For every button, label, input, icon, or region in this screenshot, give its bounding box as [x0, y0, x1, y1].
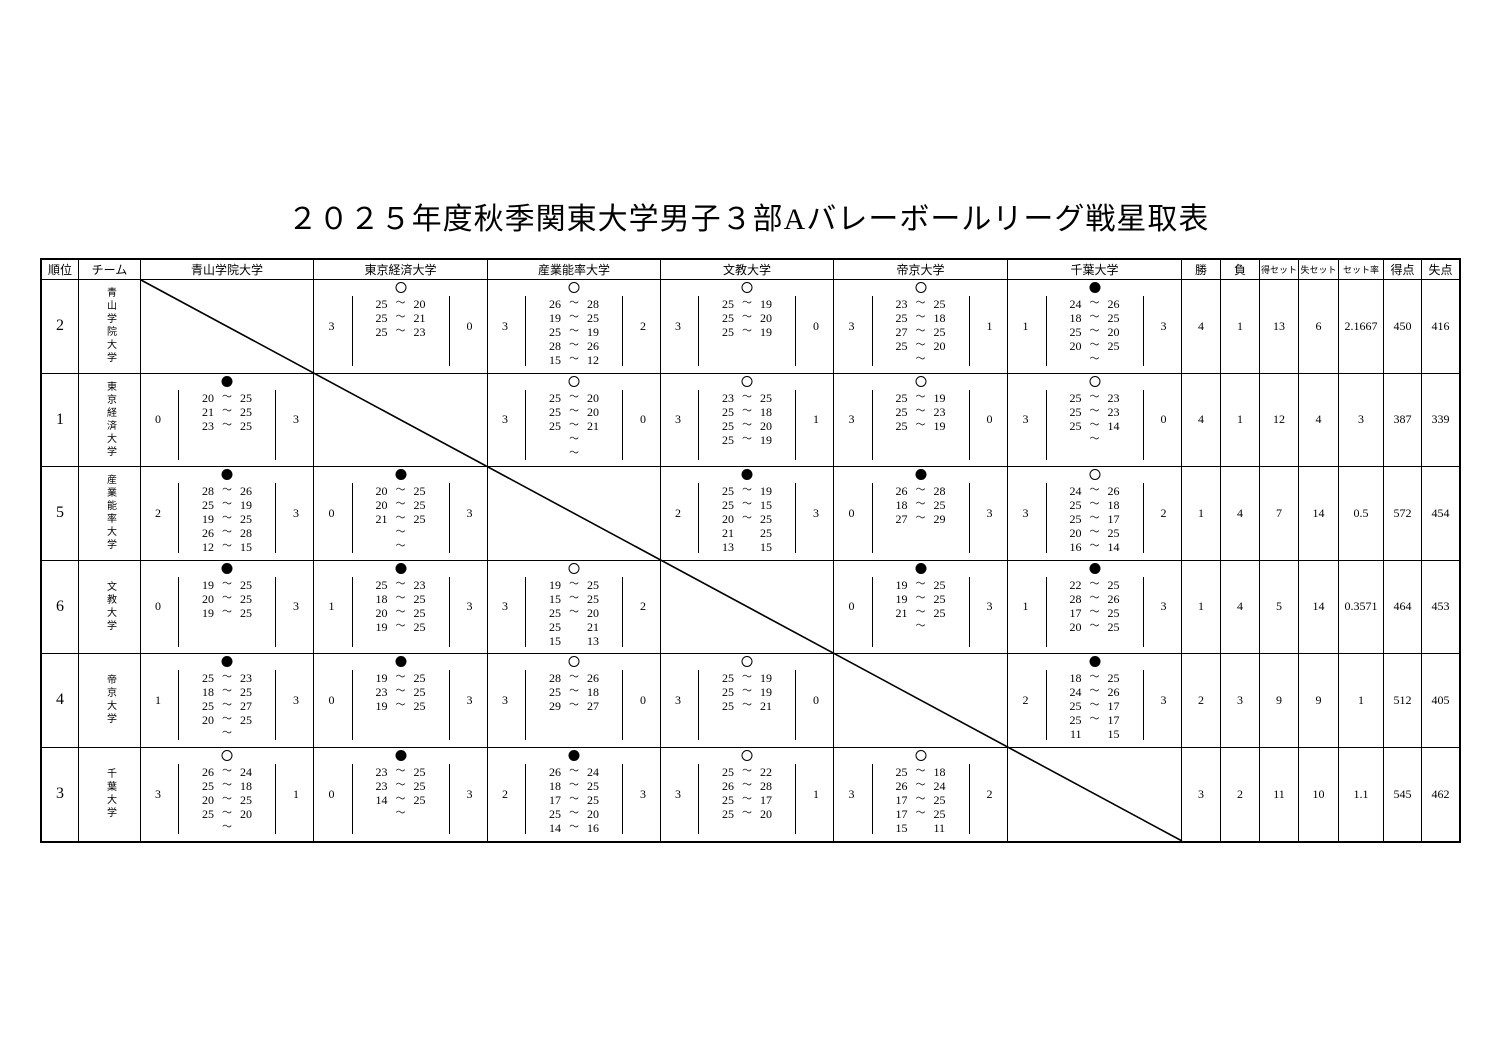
set-score-list: 25～1925～1925～21: [704, 670, 790, 740]
team-name: 千葉大学: [79, 748, 141, 842]
score-value: 25: [414, 671, 444, 685]
set-score-row: 12～15: [184, 540, 270, 554]
score-value: 25: [531, 325, 561, 339]
score-value: 19: [878, 592, 908, 606]
score-dash: ～: [734, 419, 760, 433]
set-score-row: 23～25: [704, 391, 790, 405]
set-score-row: 25～19: [704, 325, 790, 339]
score-value: 29: [531, 699, 561, 713]
score-value: 25: [414, 793, 444, 807]
stat-points-for: 572: [1384, 467, 1422, 561]
set-score-row: 25～19: [704, 484, 790, 498]
score-value: 25: [1052, 405, 1082, 419]
stat-sets-lost: 6: [1299, 280, 1339, 374]
set-score-list: 26～2418～2517～2525～2014～16: [531, 764, 617, 835]
divider: [275, 577, 276, 647]
score-value: 25: [704, 498, 734, 512]
divider: [698, 670, 699, 740]
score-dash: ～: [214, 793, 240, 807]
set-scores: 19～2520～2519～25: [178, 577, 276, 647]
score-value: 17: [1108, 699, 1138, 713]
score-value: 18: [184, 685, 214, 699]
score-value: 15: [1108, 727, 1138, 741]
set-scores: 24～2618～2525～2020～25～: [1046, 296, 1144, 367]
set-score-row: 25～19: [878, 391, 964, 405]
set-score-row: 25～18: [878, 311, 964, 325]
sets-won-right: 1: [808, 412, 824, 427]
set-score-row: 25～23: [1052, 391, 1138, 405]
stat-points-for: 545: [1384, 748, 1422, 842]
score-dash: ～: [908, 779, 934, 793]
score-value: 20: [414, 297, 444, 311]
match-cell: 228～2625～1919～2526～2812～153: [141, 467, 314, 561]
divider: [698, 296, 699, 366]
score-value: 25: [414, 779, 444, 793]
score-dash: ～: [734, 498, 760, 512]
score-dash: ～: [561, 821, 587, 835]
match-cell: 226～2418～2517～2525～2014～163: [488, 748, 661, 842]
score-value: 19: [760, 297, 790, 311]
match-cell: 325～2325～2325～14～0: [1008, 374, 1182, 468]
stat-points-for: 387: [1384, 374, 1422, 468]
score-value: 18: [760, 405, 790, 419]
score-value: 21: [358, 512, 388, 526]
set-score-row: 25～17: [704, 793, 790, 807]
stat-losses: 2: [1221, 748, 1260, 842]
score-dash: ～: [1082, 699, 1108, 713]
sets-won-right: 3: [1156, 693, 1172, 708]
score-dash: ～: [734, 484, 760, 498]
score-dash: ～: [908, 419, 934, 433]
score-dash: ～: [561, 606, 587, 620]
set-score-row: 25～19: [704, 685, 790, 699]
set-scores: 25～2318～2520～2519～25: [352, 577, 450, 647]
score-value: 18: [934, 765, 964, 779]
score-dash: ～: [734, 699, 760, 713]
score-dash: ～: [214, 765, 240, 779]
score-dash: ～: [561, 699, 587, 713]
score-value: 23: [1108, 405, 1138, 419]
score-dash: ～: [561, 592, 587, 606]
score-value: 19: [240, 498, 270, 512]
match-result: 325～1826～2417～2517～2515112: [834, 748, 1007, 842]
set-score-row: 25～22: [704, 765, 790, 779]
score-dash: ～: [734, 671, 760, 685]
score-dash: ～: [388, 620, 414, 634]
score-dash: ～: [388, 779, 414, 793]
score-dash: ～: [1082, 526, 1108, 540]
match-cell: 218～2524～2625～1725～1711153: [1008, 654, 1182, 748]
score-value: 25: [358, 311, 388, 325]
col-header-opponent-3: 文教大学: [661, 260, 834, 280]
divider: [1143, 670, 1144, 740]
sets-won-left: 0: [844, 599, 860, 614]
sets-won-right: 2: [982, 787, 998, 802]
rank-cell: 4: [42, 654, 79, 748]
score-dash: ～: [908, 765, 934, 779]
score-dash: ～: [908, 606, 934, 620]
score-dash: ～: [388, 671, 414, 685]
score-dash: ～: [388, 540, 414, 554]
team-name-label: 帝京大学: [105, 674, 115, 726]
score-value: 19: [184, 578, 214, 592]
score-value: 21: [760, 699, 790, 713]
score-dash: ～: [388, 606, 414, 620]
set-score-row: ～: [531, 447, 617, 461]
set-score-row: 28～26: [531, 671, 617, 685]
score-dash: ～: [734, 807, 760, 821]
set-scores: 19～2523～2519～25: [352, 670, 450, 740]
sets-won-right: 2: [635, 319, 651, 334]
sets-won-right: 0: [808, 319, 824, 334]
score-value: 25: [704, 405, 734, 419]
set-score-list: 25～2025～2125～23: [358, 296, 444, 366]
set-score-row: 17～25: [531, 793, 617, 807]
match-cell: 323～2525～1825～2025～191: [661, 374, 834, 468]
score-value: 21: [184, 405, 214, 419]
score-value: 21: [587, 419, 617, 433]
stat-set-ratio: 2.1667: [1339, 280, 1384, 374]
match-result: 020～2521～2523～253: [141, 374, 313, 467]
score-value: 14: [1108, 540, 1138, 554]
score-value: 25: [1052, 699, 1082, 713]
score-value: 14: [531, 821, 561, 835]
score-dash: ～: [214, 606, 240, 620]
score-value: 25: [934, 592, 964, 606]
score-value: 23: [414, 325, 444, 339]
set-scores: 25～2226～2825～1725～20: [698, 764, 796, 834]
sets-won-right: 2: [635, 599, 651, 614]
set-score-list: 25～1925～1520～2521251315: [704, 483, 790, 554]
score-value: 25: [414, 765, 444, 779]
sets-won-right: 3: [808, 506, 824, 521]
set-score-row: 25～20: [531, 606, 617, 620]
score-dash: ～: [908, 498, 934, 512]
sets-won-left: 2: [670, 506, 686, 521]
set-score-row: 25～17: [1052, 512, 1138, 526]
set-score-row: 27～25: [878, 325, 964, 339]
sets-won-left: 0: [324, 693, 340, 708]
match-result: 325～2226～2825～1725～201: [661, 748, 833, 842]
score-value: 19: [760, 433, 790, 447]
set-score-row: 25～20: [878, 339, 964, 353]
set-score-row: 17～25: [878, 807, 964, 821]
score-value: [184, 727, 214, 741]
score-value: [358, 807, 388, 821]
score-dash: ～: [908, 484, 934, 498]
self-cell: [661, 561, 834, 655]
score-dash: ～: [908, 325, 934, 339]
score-value: 24: [587, 765, 617, 779]
set-score-row: 20～25: [704, 512, 790, 526]
score-value: 25: [934, 325, 964, 339]
match-cell: 019～2519～2521～25～3: [834, 561, 1008, 655]
set-score-row: 19～25: [531, 311, 617, 325]
score-dash: ～: [734, 779, 760, 793]
sets-won-left: 3: [150, 787, 166, 802]
divider: [872, 577, 873, 647]
score-dash: [561, 634, 587, 648]
score-value: 23: [184, 419, 214, 433]
match-result: 020～2520～2521～25～～3: [314, 467, 487, 560]
score-value: 25: [878, 339, 908, 353]
score-dash: [561, 620, 587, 634]
set-score-row: ～: [1052, 433, 1138, 447]
stat-losses: 1: [1221, 280, 1260, 374]
score-value: 20: [587, 606, 617, 620]
stat-wins: 1: [1182, 561, 1221, 655]
score-value: 26: [1108, 592, 1138, 606]
score-value: 25: [240, 713, 270, 727]
score-value: 25: [1108, 606, 1138, 620]
score-value: 25: [704, 699, 734, 713]
score-value: 20: [760, 807, 790, 821]
divider: [622, 577, 623, 647]
sets-won-left: 3: [497, 412, 513, 427]
score-value: 13: [704, 540, 734, 554]
score-value: 20: [760, 419, 790, 433]
score-value: 16: [587, 821, 617, 835]
rank-cell: 1: [42, 374, 79, 468]
score-value: 20: [358, 498, 388, 512]
sets-won-left: 2: [497, 787, 513, 802]
sets-won-left: 0: [324, 787, 340, 802]
rank-cell: 5: [42, 467, 79, 561]
self-cell: [834, 654, 1008, 748]
stat-sets-lost: 10: [1299, 748, 1339, 842]
score-value: [1108, 433, 1138, 447]
set-score-list: 24～2618～2525～2020～25～: [1052, 296, 1138, 367]
score-value: 25: [184, 807, 214, 821]
score-value: 25: [1108, 620, 1138, 634]
sets-won-right: 3: [982, 506, 998, 521]
set-score-row: 26～28: [704, 779, 790, 793]
score-value: 22: [760, 765, 790, 779]
score-value: 25: [1052, 391, 1082, 405]
score-dash: [734, 526, 760, 540]
set-score-row: 25～23: [878, 405, 964, 419]
divider: [352, 670, 353, 740]
team-name-label: 文教大学: [105, 581, 115, 633]
set-score-row: 26～28: [531, 297, 617, 311]
set-score-list: 20～2520～2521～25～～: [358, 483, 444, 554]
sets-won-right: 1: [808, 787, 824, 802]
score-value: 19: [587, 325, 617, 339]
rank-cell: 6: [42, 561, 79, 655]
score-dash: ～: [388, 592, 414, 606]
set-score-row: 23～25: [184, 419, 270, 433]
set-score-row: 14～25: [358, 793, 444, 807]
set-score-row: 21～25: [358, 512, 444, 526]
score-value: 25: [240, 578, 270, 592]
set-score-row: 19～25: [184, 606, 270, 620]
match-result: 122～2528～2617～2520～253: [1008, 561, 1181, 654]
self-cell: [1008, 748, 1182, 842]
score-value: 17: [878, 793, 908, 807]
col-header-opponent-1: 東京経済大学: [314, 260, 488, 280]
stat-wins: 3: [1182, 748, 1221, 842]
score-value: 26: [878, 779, 908, 793]
sets-won-right: 3: [288, 599, 304, 614]
match-cell: 125～2318～2525～2720～25～3: [141, 654, 314, 748]
score-dash: ～: [388, 578, 414, 592]
match-cell: 019～2520～2519～253: [141, 561, 314, 655]
stat-set-ratio: 0.3571: [1339, 561, 1384, 655]
score-dash: ～: [734, 405, 760, 419]
stat-set-ratio: 1.1: [1339, 748, 1384, 842]
divider: [795, 296, 796, 366]
stat-points-against: 462: [1422, 748, 1459, 842]
page-title: ２０２５年度秋季関東大学男子３部Aバレーボールリーグ戦星取表: [0, 194, 1497, 238]
score-value: 20: [1052, 339, 1082, 353]
score-value: 18: [934, 311, 964, 325]
match-cell: 019～2523～2519～253: [314, 654, 488, 748]
set-score-list: 25～1925～2025～19: [704, 296, 790, 366]
set-scores: 19～2515～2525～2025211513: [525, 577, 623, 648]
score-value: 26: [184, 765, 214, 779]
score-value: 20: [1052, 620, 1082, 634]
stat-sets-won: 13: [1260, 280, 1299, 374]
set-score-row: 18～25: [878, 498, 964, 512]
match-cell: 023～2523～2514～25～3: [314, 748, 488, 842]
score-value: 26: [1108, 297, 1138, 311]
score-value: 25: [240, 592, 270, 606]
divider: [525, 670, 526, 740]
match-result: 325～2325～2325～14～0: [1008, 374, 1181, 467]
stat-losses: 3: [1221, 654, 1260, 748]
sets-won-left: 3: [1018, 412, 1034, 427]
score-dash: ～: [214, 540, 240, 554]
stat-set-ratio: 1: [1339, 654, 1384, 748]
score-value: 19: [531, 578, 561, 592]
score-value: 20: [358, 606, 388, 620]
set-scores: 22～2528～2617～2520～25: [1046, 577, 1144, 647]
set-score-row: 19～25: [878, 578, 964, 592]
divider: [525, 764, 526, 834]
score-dash: ～: [1082, 419, 1108, 433]
score-value: 19: [760, 484, 790, 498]
score-dash: ～: [388, 484, 414, 498]
set-score-row: 23～25: [358, 685, 444, 699]
score-value: 18: [240, 779, 270, 793]
score-value: 27: [878, 512, 908, 526]
sets-won-right: 3: [462, 506, 478, 521]
stat-sets-won: 11: [1260, 748, 1299, 842]
score-value: 26: [704, 779, 734, 793]
col-header-losses: 負: [1221, 260, 1260, 280]
sets-won-right: 0: [462, 319, 478, 334]
score-value: 25: [878, 405, 908, 419]
score-value: 25: [358, 325, 388, 339]
set-score-row: 16～14: [1052, 540, 1138, 554]
score-value: 25: [414, 484, 444, 498]
divider: [352, 296, 353, 366]
score-dash: ～: [1082, 325, 1108, 339]
score-value: 17: [531, 793, 561, 807]
stat-sets-lost: 9: [1299, 654, 1339, 748]
set-score-row: 25～20: [531, 807, 617, 821]
score-dash: ～: [908, 578, 934, 592]
stat-set-ratio: 3: [1339, 374, 1384, 468]
score-value: 27: [587, 699, 617, 713]
score-value: 24: [1052, 484, 1082, 498]
set-score-row: 1115: [1052, 727, 1138, 741]
score-dash: ～: [561, 433, 587, 447]
score-value: 19: [760, 325, 790, 339]
score-value: 18: [878, 498, 908, 512]
score-value: 15: [240, 540, 270, 554]
score-value: 23: [934, 405, 964, 419]
score-value: 17: [1108, 512, 1138, 526]
set-score-list: 26～2818～2527～29: [878, 483, 964, 553]
set-score-row: 25～17: [1052, 713, 1138, 727]
match-result: 328～2625～1829～270: [488, 654, 660, 747]
score-value: [934, 353, 964, 367]
divider: [698, 483, 699, 553]
sets-won-left: 3: [844, 319, 860, 334]
match-result: 124～2618～2525～2020～25～3: [1008, 280, 1181, 373]
score-dash: ～: [214, 671, 240, 685]
set-score-row: 25～19: [184, 498, 270, 512]
score-value: 21: [587, 620, 617, 634]
score-value: 23: [358, 779, 388, 793]
score-value: 25: [1052, 325, 1082, 339]
score-value: 25: [587, 311, 617, 325]
set-score-list: 19～2520～2519～25: [184, 577, 270, 647]
sets-won-right: 3: [982, 599, 998, 614]
stat-losses: 4: [1221, 561, 1260, 655]
set-score-row: 20～25: [358, 498, 444, 512]
score-value: 12: [587, 353, 617, 367]
score-value: [414, 807, 444, 821]
set-score-row: 25～23: [1052, 405, 1138, 419]
divider: [622, 390, 623, 460]
divider: [795, 483, 796, 553]
set-score-list: 28～2625～1829～27: [531, 670, 617, 740]
score-value: 18: [358, 592, 388, 606]
divider: [1143, 483, 1144, 553]
col-header-opponent-4: 帝京大学: [834, 260, 1008, 280]
set-score-row: 20～25: [184, 391, 270, 405]
set-score-row: 18～25: [184, 685, 270, 699]
score-value: 26: [878, 484, 908, 498]
stat-points-for: 512: [1384, 654, 1422, 748]
set-score-row: 23～25: [358, 765, 444, 779]
sets-won-right: 0: [1156, 412, 1172, 427]
score-value: 20: [1052, 526, 1082, 540]
score-value: 19: [358, 671, 388, 685]
divider: [178, 390, 179, 460]
score-value: 26: [531, 765, 561, 779]
score-value: 28: [934, 484, 964, 498]
score-dash: ～: [908, 353, 934, 367]
set-score-row: 25～20: [1052, 325, 1138, 339]
match-cell: 326～2819～2525～1928～2615～122: [488, 280, 661, 374]
score-value: 25: [587, 592, 617, 606]
score-value: 25: [414, 699, 444, 713]
score-value: 29: [934, 512, 964, 526]
set-score-row: 23～25: [878, 297, 964, 311]
sets-won-right: 0: [808, 693, 824, 708]
score-value: 25: [878, 391, 908, 405]
divider: [1143, 577, 1144, 647]
set-scores: 28～2625～1919～2526～2812～15: [178, 483, 276, 554]
set-score-row: 18～25: [358, 592, 444, 606]
score-value: [1052, 433, 1082, 447]
divider: [969, 764, 970, 834]
score-value: 12: [184, 540, 214, 554]
score-value: 18: [587, 685, 617, 699]
